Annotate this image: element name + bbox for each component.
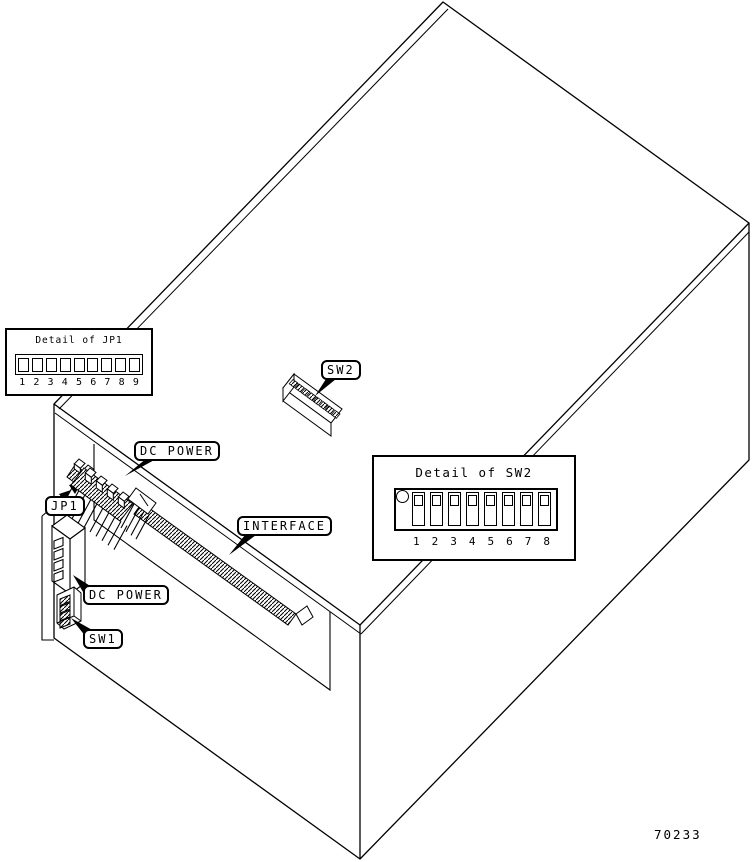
sw2-switch xyxy=(500,492,518,529)
jp1-pin-square xyxy=(115,358,126,372)
jp1-pin-number: 8 xyxy=(115,377,129,388)
jp1-pin-square xyxy=(87,358,98,372)
jp1-pin-number: 7 xyxy=(100,377,114,388)
sw2-switch-actuator xyxy=(504,495,513,506)
detail-jp1-inset: Detail of JP1 1 2 3 4 5 6 7 8 9 xyxy=(5,328,153,396)
sw2-switch xyxy=(445,492,463,529)
detail-sw2-inset: Detail of SW2 1 2 3 4 5 6 7 8 xyxy=(372,455,576,561)
jp1-pin xyxy=(72,358,86,372)
interface-tail xyxy=(229,535,256,555)
sw2-position-number: 2 xyxy=(426,535,445,548)
interface-end-cap xyxy=(296,606,313,625)
sw2-switch-actuator xyxy=(450,495,459,506)
jp1-pin xyxy=(58,358,72,372)
sw2-switch-body xyxy=(466,492,479,526)
jp1-pin-square xyxy=(129,358,140,372)
sw2-switch-body xyxy=(538,492,551,526)
jp1-pin xyxy=(45,358,59,372)
sw2-switch-actuator xyxy=(432,495,441,506)
jp1-pin xyxy=(17,358,31,372)
jp1-pin-number: 9 xyxy=(129,377,143,388)
jp1-pin-number: 3 xyxy=(43,377,57,388)
sw2-switch-actuator xyxy=(540,495,549,506)
sw2-position-number: 5 xyxy=(482,535,501,548)
sw2-switch-actuator xyxy=(468,495,477,506)
jp1-pin-square xyxy=(60,358,71,372)
sw2-switch xyxy=(536,492,554,529)
sw2-switch-actuator xyxy=(414,495,423,506)
jp1-pin-numbers: 1 2 3 4 5 6 7 8 9 xyxy=(15,377,143,388)
sw2-switch xyxy=(427,492,445,529)
callout-sw2: SW2 xyxy=(321,360,361,380)
jp1-pin xyxy=(127,358,141,372)
device-box-outline xyxy=(54,2,749,859)
sw2-position-numbers: 1 2 3 4 5 6 7 8 xyxy=(394,535,558,548)
callout-sw1: SW1 xyxy=(83,629,123,649)
sw2-position-number: 8 xyxy=(537,535,556,548)
sw2-switch-body xyxy=(430,492,443,526)
sw2-switch xyxy=(409,492,427,529)
technical-diagram: SW2 DC POWER JP1 INTERFACE DC POWER SW1 … xyxy=(0,0,753,862)
jp1-pin-square xyxy=(18,358,29,372)
sw2-switch-body xyxy=(484,492,497,526)
detail-jp1-title: Detail of JP1 xyxy=(7,335,151,346)
callout-dc-power-side: DC POWER xyxy=(83,585,169,605)
sw2-position-number: 6 xyxy=(500,535,519,548)
callout-dc-power-top: DC POWER xyxy=(134,441,220,461)
jp1-pin-square xyxy=(32,358,43,372)
sw2-switch-body xyxy=(448,492,461,526)
sw2-switch-actuator xyxy=(522,495,531,506)
jp1-pin xyxy=(31,358,45,372)
sw2-switch xyxy=(482,492,500,529)
jp1-pin xyxy=(86,358,100,372)
sw2-switch-body xyxy=(412,492,425,526)
jp1-pin-number: 6 xyxy=(86,377,100,388)
jp1-pin xyxy=(113,358,127,372)
sw2-switch xyxy=(518,492,536,529)
sw2-pin1-indicator-circle xyxy=(396,490,409,503)
callout-jp1: JP1 xyxy=(45,496,85,516)
sw2-position-number: 1 xyxy=(407,535,426,548)
jp1-pin-number: 2 xyxy=(29,377,43,388)
sw2-position-number: 3 xyxy=(444,535,463,548)
sw2-dip-switch xyxy=(283,374,342,436)
jp1-pin xyxy=(100,358,114,372)
jp1-connector-drawing xyxy=(15,354,143,375)
detail-sw2-title: Detail of SW2 xyxy=(374,465,574,480)
jp1-pin-square xyxy=(74,358,85,372)
jp1-pin-number: 5 xyxy=(72,377,86,388)
sw2-switch xyxy=(463,492,481,529)
jp1-pin-number: 1 xyxy=(15,377,29,388)
jp1-pin-square xyxy=(101,358,112,372)
callout-interface: INTERFACE xyxy=(237,516,332,536)
sw2-switch-actuator xyxy=(486,495,495,506)
jp1-pin-number: 4 xyxy=(58,377,72,388)
sw2-switch-body xyxy=(520,492,533,526)
diagram-linework xyxy=(0,0,753,862)
sw2-switch-body xyxy=(502,492,515,526)
sw2-connector-drawing xyxy=(394,488,558,531)
jp1-pin-square xyxy=(46,358,57,372)
sw2-position-number: 4 xyxy=(463,535,482,548)
figure-number: 70233 xyxy=(654,827,702,842)
sw2-position-number: 7 xyxy=(519,535,538,548)
